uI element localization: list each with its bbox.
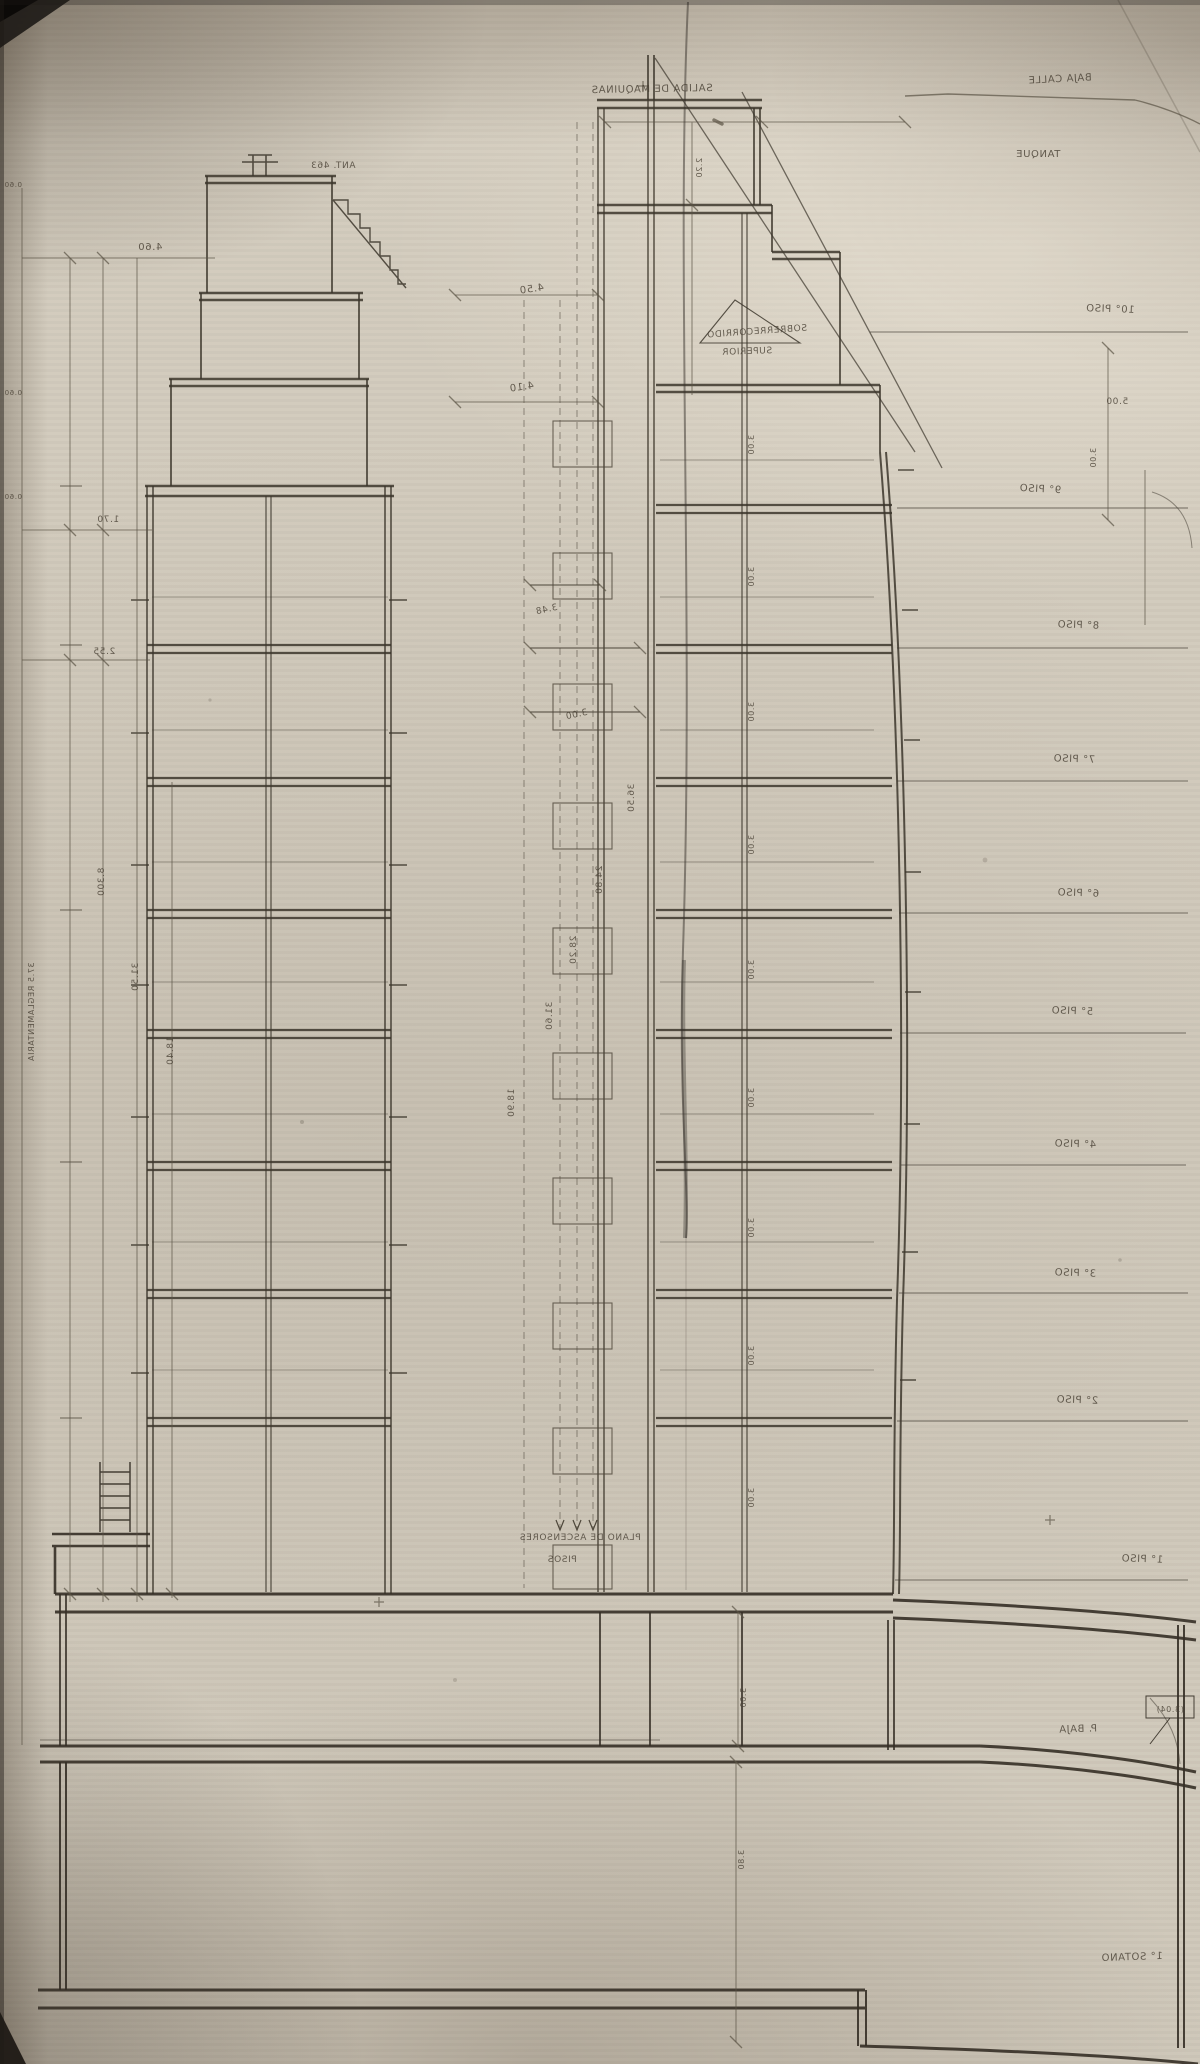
annotation-text: SALIDA DE MAQUINAS bbox=[591, 83, 713, 96]
ground-slab bbox=[55, 1594, 1196, 1640]
elevator-cars bbox=[553, 421, 612, 1589]
left-edge-shadow bbox=[0, 0, 4, 2064]
roof-dim-lines bbox=[22, 258, 598, 660]
annotation-text: BAJA CALLE bbox=[1028, 72, 1092, 86]
elevator-shaft bbox=[524, 100, 654, 1592]
scan-artifacts bbox=[0, 0, 1200, 2064]
ladder bbox=[100, 1462, 130, 1532]
right-tower-column bbox=[742, 213, 747, 1592]
bottom-slabs bbox=[38, 1990, 1198, 2064]
speck bbox=[983, 858, 988, 863]
annotation-text: 3.00 bbox=[747, 567, 756, 587]
left-tower-column bbox=[266, 496, 271, 1592]
annotation-text: 8.300 bbox=[97, 868, 107, 897]
annotation-text: 3.48 bbox=[535, 603, 559, 617]
annotation-text: 1° PISO bbox=[1121, 1553, 1163, 1565]
left-dim-chains bbox=[22, 188, 172, 1745]
setback-diagonal-lines bbox=[655, 58, 942, 468]
annotation-text: 0.60 bbox=[4, 389, 22, 397]
machine-room bbox=[597, 100, 762, 108]
right-tower-window-ticks bbox=[898, 470, 921, 1380]
shaft-guide-rails-dashed bbox=[524, 122, 593, 1588]
annotation-text: 3.80 bbox=[737, 1850, 746, 1870]
dim-box-leader bbox=[1150, 1718, 1170, 1744]
annotation-text: 7° PISO bbox=[1053, 753, 1095, 765]
annotation-text: 2.55 bbox=[93, 647, 115, 657]
rail-arrowheads bbox=[556, 1520, 597, 1530]
annotation-text: 6° PISO bbox=[1057, 887, 1099, 899]
annotation-text: 4° PISO bbox=[1054, 1138, 1096, 1150]
section-drawing: SALIDA DE MAQUINASBAJA CALLETANQUEANT. 4… bbox=[0, 0, 1200, 2064]
annotation-text: 8° PISO bbox=[1057, 619, 1099, 631]
street-line bbox=[905, 94, 1200, 124]
annotation-text: 3° PISO bbox=[1054, 1267, 1096, 1279]
annotation-text: 31.60 bbox=[545, 1002, 555, 1031]
annotation-text: 3.00 bbox=[747, 435, 756, 455]
floor-level-ticks bbox=[60, 486, 82, 1418]
annotation-text: 2.20 bbox=[695, 158, 704, 178]
corner-fold-line bbox=[1118, 0, 1200, 152]
annotation-text: 2° PISO bbox=[1056, 1394, 1098, 1406]
speck bbox=[453, 1678, 457, 1682]
annotation-text: 5° PISO bbox=[1051, 1005, 1093, 1017]
left-tower-floor-slabs bbox=[147, 645, 391, 1426]
dim-arrow-dot bbox=[714, 120, 722, 124]
annotation-text: (3.04) bbox=[1156, 1705, 1184, 1714]
annotation-text: 10° PISO bbox=[1085, 303, 1134, 316]
annotation-text: SUPERIOR bbox=[722, 346, 773, 358]
floor-label-extension-lines bbox=[870, 332, 1188, 1580]
plus-marks bbox=[374, 81, 1055, 1607]
annotation-text: PISOS bbox=[547, 1555, 577, 1565]
annotation-text: 9° PISO bbox=[1019, 483, 1061, 496]
baja-slab bbox=[40, 1746, 1196, 1788]
annotation-text: 3.00 bbox=[747, 1488, 756, 1508]
annotation-text: 3.00 bbox=[747, 1218, 756, 1238]
annotation-text: 36.50 bbox=[627, 784, 637, 813]
speck bbox=[1118, 1258, 1122, 1262]
annotation-text: ANT. 463 bbox=[310, 161, 355, 171]
right-dim-chains bbox=[736, 348, 1145, 2042]
annotation-text: 5.00 bbox=[1106, 397, 1128, 407]
annotation-text: 1.70 bbox=[97, 515, 119, 525]
left-tower-sills bbox=[152, 597, 388, 1370]
dimension-lines bbox=[22, 81, 1200, 2048]
annotation-text: 3.00 bbox=[747, 1346, 756, 1366]
annotation-text: 3.00 bbox=[747, 835, 756, 855]
antenna-mast bbox=[242, 155, 278, 176]
annotation-text: 4.10 bbox=[509, 380, 535, 394]
annotation-text: 18.90 bbox=[507, 1089, 517, 1118]
annotation-text: 4.60 bbox=[138, 242, 163, 253]
speck bbox=[208, 698, 211, 701]
right-tower-sills bbox=[660, 460, 874, 1370]
annotation-text: 28.20 bbox=[569, 936, 579, 965]
machine-room-walls bbox=[648, 55, 760, 205]
annotation-text: PLANO DE ASCENSORES bbox=[519, 1533, 640, 1543]
ground-to-baja-columns bbox=[60, 1594, 894, 1750]
annotation-text: 24.80 bbox=[595, 866, 605, 895]
annotation-text: P. BAJA bbox=[1059, 1723, 1098, 1735]
setback-slabs bbox=[597, 205, 880, 392]
annotation-text: 37.5 REGLAMENTARIA bbox=[27, 962, 36, 1061]
dim-ticks bbox=[64, 116, 1114, 2048]
annotation-text: 0.60 bbox=[4, 181, 22, 189]
annotation-text: 1° SOTANO bbox=[1101, 1951, 1163, 1964]
right-tower-outer-wall bbox=[880, 452, 907, 1594]
ladder-platform bbox=[52, 1534, 150, 1594]
annotation-text: 3.00 bbox=[747, 960, 756, 980]
left-tower-roof-slabs bbox=[145, 176, 394, 496]
annotation-text: 31.50 bbox=[131, 963, 141, 992]
annotation-text: TANQUE bbox=[1016, 149, 1062, 160]
basement-levels bbox=[38, 1462, 1198, 2064]
basement-walls bbox=[60, 1625, 1184, 2048]
left-tower-upper-walls bbox=[171, 176, 367, 486]
annotation-text: 3.00 bbox=[565, 708, 589, 722]
annotation-text: 3.00 bbox=[1089, 448, 1098, 468]
annotation-text: 3.00 bbox=[747, 702, 756, 722]
right-edge-curves bbox=[1150, 492, 1192, 1764]
right-tower-floor-slabs bbox=[656, 505, 892, 1426]
blueprint-scan: SALIDA DE MAQUINASBAJA CALLETANQUEANT. 4… bbox=[0, 0, 1200, 2064]
paper-crease-blotch bbox=[683, 960, 686, 1238]
annotation-text: 18.40 bbox=[166, 1037, 176, 1066]
annotation-text: 3.00 bbox=[739, 1688, 748, 1708]
annotation-text: 0.60 bbox=[4, 493, 22, 501]
top-edge-shadow bbox=[0, 0, 1200, 5]
shaft-walls bbox=[598, 100, 654, 1592]
stair-section bbox=[333, 200, 406, 288]
annotation-labels: SALIDA DE MAQUINASBAJA CALLETANQUEANT. 4… bbox=[4, 72, 1184, 1964]
annotation-text: 3.00 bbox=[747, 1088, 756, 1108]
speck bbox=[300, 1120, 304, 1124]
